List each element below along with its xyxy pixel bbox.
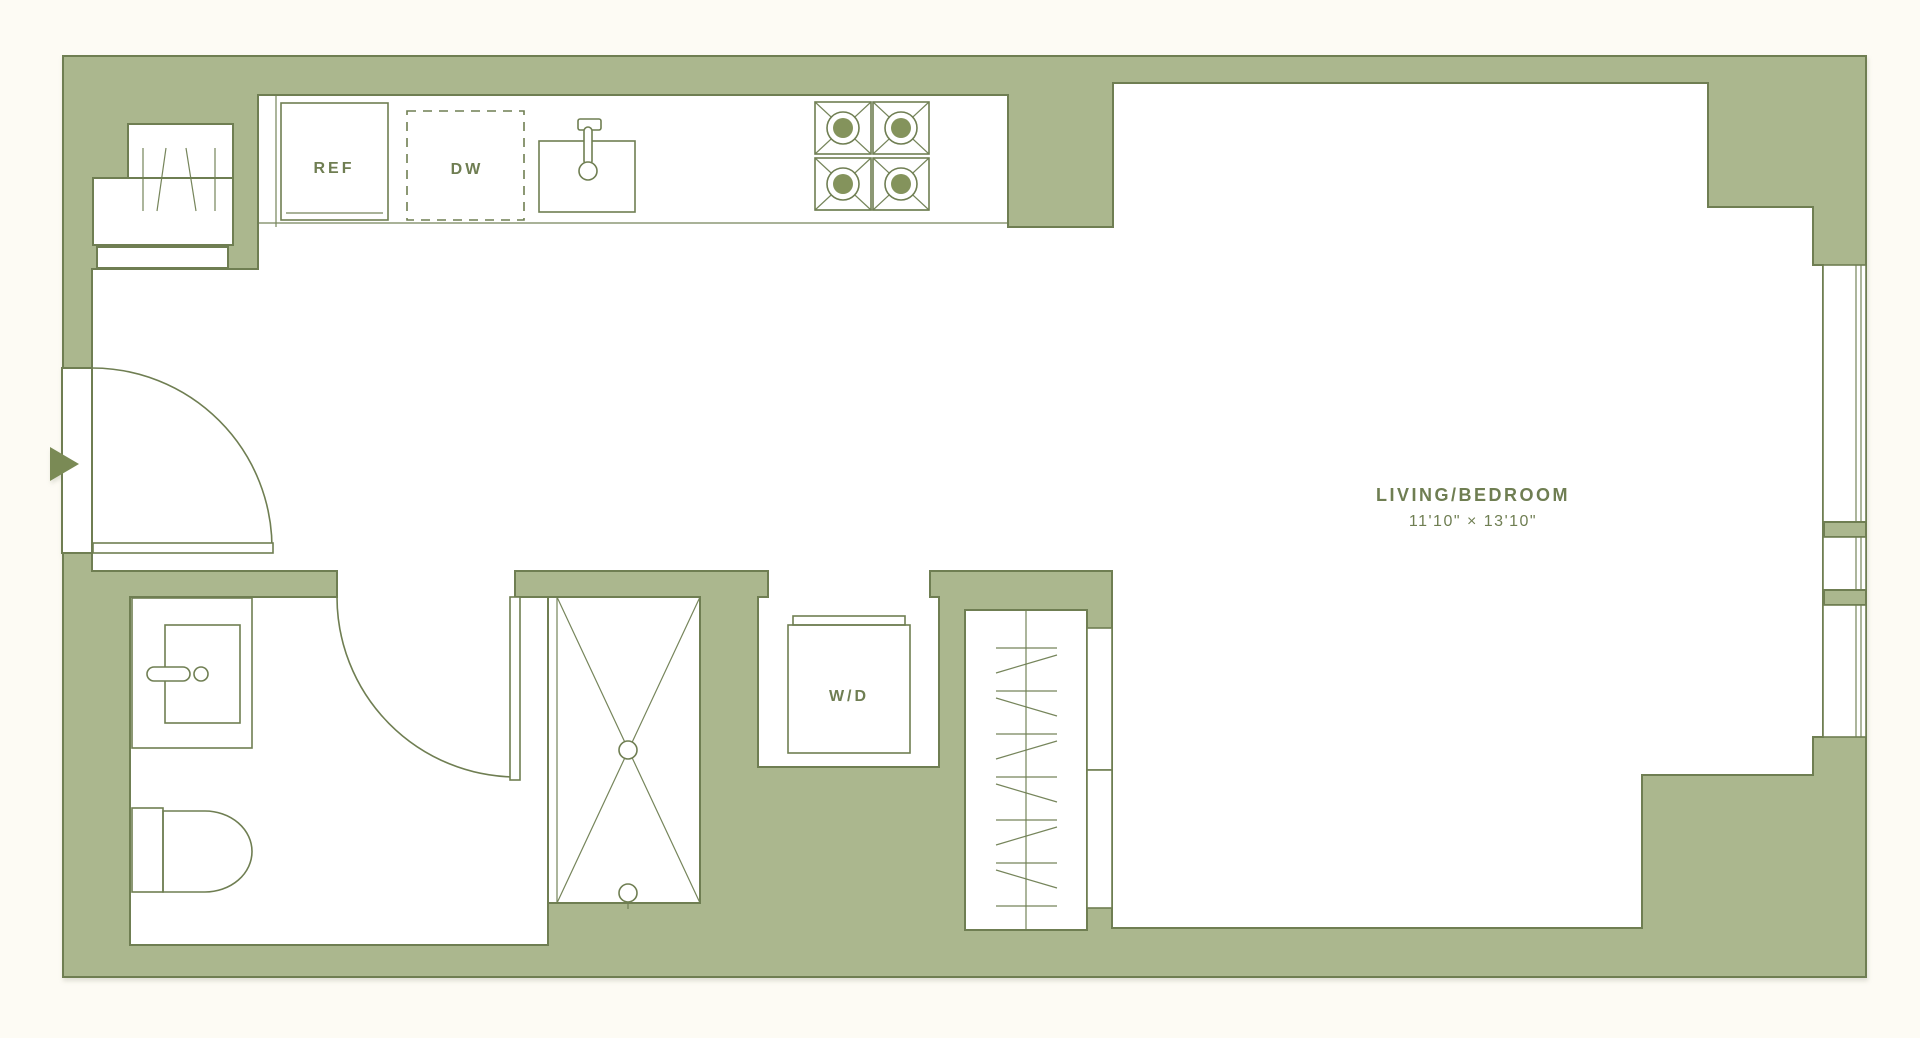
living-bedroom-dimensions: 11'10" × 13'10" <box>1409 513 1537 530</box>
window-wall <box>1823 265 1866 737</box>
closet-door-panel-lower <box>1087 770 1112 908</box>
window-lower <box>1823 605 1866 737</box>
vanity-faucet <box>147 667 190 681</box>
dishwasher-label: DW <box>451 161 484 178</box>
shower-stall <box>548 597 700 909</box>
refrigerator-label: REF <box>314 160 355 177</box>
entry-closet-upper <box>128 124 233 178</box>
window-mullion-lower <box>1824 590 1866 605</box>
bedroom-closet <box>965 610 1112 930</box>
vanity-faucet-knob <box>194 667 208 681</box>
entry-closet-lower <box>93 178 233 245</box>
faucet-stem <box>584 127 592 165</box>
window-middle <box>1823 537 1866 590</box>
floor-plan-drawing: REF DW <box>0 0 1920 1038</box>
shower-center-marker <box>619 741 637 759</box>
floor-plan-page: REF DW <box>0 0 1920 1038</box>
window-mullion-upper <box>1824 522 1866 537</box>
closet-door-panel-upper <box>1087 628 1112 770</box>
entry-closet-base <box>97 247 228 268</box>
entry-door-leaf <box>93 543 273 553</box>
bathroom-door-leaf <box>510 597 520 780</box>
faucet-spout <box>579 162 597 180</box>
living-bedroom-label: LIVING/BEDROOM <box>1376 485 1570 505</box>
washer-dryer-label: W/D <box>829 688 869 705</box>
window-upper <box>1823 265 1866 522</box>
